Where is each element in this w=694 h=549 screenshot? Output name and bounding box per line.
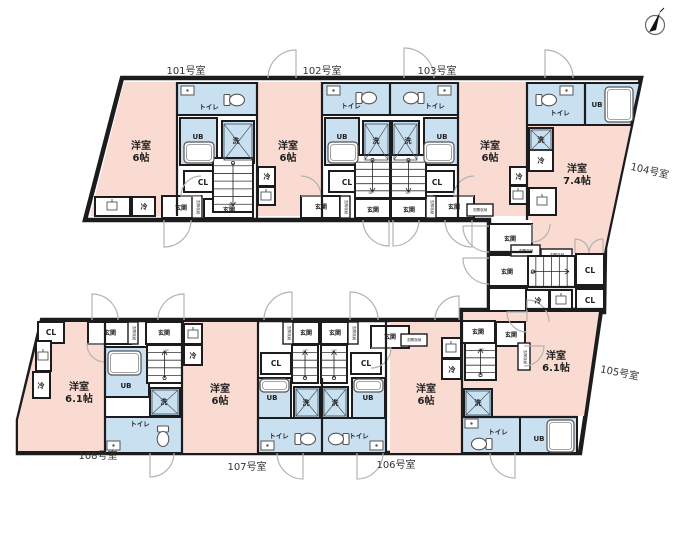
tub-outer	[605, 87, 633, 122]
label-cl-108: CL	[46, 328, 57, 337]
label-room-104-type: 洋室	[567, 162, 587, 175]
label-fridge-108: 冷	[38, 381, 45, 390]
label-ub-108: UB	[120, 382, 131, 390]
label-storage-10: 玄関収納	[407, 337, 422, 342]
label-wash-106: 洗	[332, 398, 339, 407]
label-fridge-107: 冷	[190, 351, 197, 360]
label-storage-7: 玄関収納	[132, 326, 137, 341]
label-toilet-107: トイレ	[269, 432, 289, 440]
label-room-106-size: 6帖	[418, 394, 435, 407]
label-cl-107: CL	[271, 359, 282, 368]
label-toilet-105: トイレ	[488, 428, 508, 436]
bathtub-icon	[184, 142, 214, 163]
label-unit-108: 108号室	[78, 449, 117, 462]
toilet-icon	[329, 433, 350, 445]
door-arc	[393, 220, 419, 246]
label-up-3: UP	[405, 190, 411, 195]
hand-sink-icon	[370, 441, 383, 450]
label-fridge-105: 冷	[535, 296, 542, 305]
label-ub-103: UB	[436, 133, 447, 141]
label-storage-1: 玄関収納	[196, 200, 201, 215]
label-room-106-type: 洋室	[416, 382, 436, 395]
bathtub-icon	[108, 351, 141, 375]
label-wash-107: 洗	[303, 398, 310, 407]
label-cl-mid-2: CL	[585, 296, 596, 305]
label-genkan-106b: 玄関	[329, 329, 341, 337]
label-cl-103: CL	[432, 178, 443, 187]
bathtub-icon	[424, 142, 454, 163]
label-genkan-106: 玄関	[384, 333, 396, 341]
label-genkan-107b: 玄関	[300, 329, 312, 337]
hand-sink-icon	[181, 86, 194, 95]
label-storage-3: 玄関収納	[430, 200, 435, 215]
tub-outer	[184, 142, 214, 163]
label-toilet-101: トイレ	[199, 103, 219, 111]
label-toilet-108: トイレ	[130, 420, 150, 428]
door-arc	[150, 453, 174, 477]
toilet-bowl	[472, 438, 487, 450]
label-wash-102: 洗	[373, 136, 380, 145]
hand-sink-icon	[327, 86, 340, 95]
compass-tail	[660, 8, 664, 12]
label-fridge-103: 冷	[516, 172, 523, 181]
label-room-105-size: 6.1帖	[542, 361, 570, 374]
door-arc	[158, 294, 184, 320]
label-fridge-102: 冷	[264, 172, 271, 181]
label-storage-2: 玄関収納	[344, 200, 349, 215]
label-up-8: UP	[478, 347, 484, 352]
label-ub-107: UB	[266, 394, 277, 402]
hand-sink-icon	[560, 86, 573, 95]
hand-sink-icon	[107, 441, 120, 450]
label-unit-107: 107号室	[227, 460, 266, 473]
label-storage-4: 玄関収納	[473, 207, 488, 212]
label-toilet-106: トイレ	[349, 432, 369, 440]
label-toilet-103: トイレ	[425, 102, 445, 110]
toilet-icon	[295, 433, 316, 445]
sink-drain	[565, 89, 567, 91]
sink-drain	[112, 444, 114, 446]
door-arc	[164, 220, 191, 247]
label-fridge-101: 冷	[141, 202, 148, 211]
label-storage-8: 玄関収納	[287, 326, 292, 341]
label-up-5: UP	[163, 348, 169, 353]
label-room-101-size: 6帖	[133, 151, 150, 164]
label-ub-105: UB	[533, 435, 544, 443]
label-room-104-size: 7.4帖	[563, 174, 591, 187]
toilet-icon	[157, 426, 169, 447]
label-room-108-size: 6.1帖	[65, 392, 93, 405]
door-arc	[92, 294, 118, 320]
label-unit-105: 105号室	[599, 362, 640, 382]
label-ub-101: UB	[192, 133, 203, 141]
sink-drain	[470, 422, 472, 424]
label-cl-mid-1: CL	[585, 266, 596, 275]
bathtub-icon	[547, 420, 574, 452]
label-ub-104: UB	[591, 101, 602, 109]
floor-plan-drawing: 101号室102号室103号室104号室105号室106号室107号室108号室…	[0, 0, 694, 549]
label-toilet-104: トイレ	[550, 109, 570, 117]
toilet-bowl	[404, 92, 419, 104]
door-arc	[277, 453, 303, 479]
toilet-bowl	[362, 92, 377, 104]
sink-drain	[375, 444, 377, 446]
door-arc	[264, 292, 292, 320]
sink-drain	[332, 89, 334, 91]
bathtub-icon	[328, 142, 358, 163]
label-genkan-105: 玄関	[501, 268, 513, 276]
tub-outer	[108, 351, 141, 375]
label-storage-5: 玄関収納	[519, 248, 534, 253]
toilet-icon	[224, 94, 245, 106]
label-genkan-108: 玄関	[104, 329, 116, 337]
tub-outer	[354, 379, 383, 392]
toilet-icon	[472, 438, 493, 450]
label-room-103-size: 6帖	[482, 151, 499, 164]
sink-drain	[266, 444, 268, 446]
bathtub-icon	[354, 379, 383, 392]
label-genkan-103b: 玄関	[403, 206, 415, 214]
toilet-bowl	[157, 432, 169, 447]
toilet-bowl	[230, 94, 245, 106]
label-wash-104: 洗	[538, 135, 545, 144]
toilet-bowl	[542, 94, 557, 106]
tub-outer	[424, 142, 454, 163]
door-arc	[268, 50, 296, 78]
label-genkan-102: 玄関	[315, 203, 327, 211]
label-cl-101: CL	[198, 178, 209, 187]
door-arc	[445, 220, 472, 247]
label-room-101-type: 洋室	[131, 139, 151, 152]
label-room-103-type: 洋室	[480, 139, 500, 152]
toilet-bowl	[329, 433, 344, 445]
label-unit-103: 103号室	[417, 64, 456, 77]
label-wash-108: 洗	[161, 397, 168, 406]
label-unit-106: 106号室	[376, 458, 415, 471]
label-fridge-104: 冷	[538, 156, 545, 165]
label-up-1: UP	[228, 202, 234, 207]
label-genkan-107: 玄関	[158, 329, 170, 337]
label-storage-9: 玄関収納	[352, 326, 357, 341]
tub-outer	[547, 420, 574, 452]
label-room-102-size: 6帖	[280, 151, 297, 164]
sink-drain	[186, 89, 188, 91]
label-ub-102: UB	[336, 133, 347, 141]
label-fridge-106: 冷	[449, 365, 456, 374]
bathtub-icon	[605, 87, 633, 122]
label-cl-106: CL	[361, 359, 372, 368]
floor-plan-page: 101号室102号室103号室104号室105号室106号室107号室108号室…	[0, 0, 694, 549]
label-genkan-102b: 玄関	[367, 206, 379, 214]
sink-drain	[443, 89, 445, 91]
label-wash-101: 洗	[233, 136, 240, 145]
hand-sink-icon	[465, 419, 478, 428]
toilet-icon	[536, 94, 557, 106]
label-toilet-102: トイレ	[341, 102, 361, 110]
label-room-108-type: 洋室	[69, 380, 89, 393]
label-cl-102: CL	[342, 178, 353, 187]
hand-sink-icon	[261, 441, 274, 450]
tub-outer	[328, 142, 358, 163]
bathtub-icon	[260, 379, 289, 392]
label-genkan-101: 玄関	[175, 204, 187, 212]
label-unit-101: 101号室	[166, 64, 205, 77]
label-room-107-type: 洋室	[210, 382, 230, 395]
label-storage-11: 玄関収納	[523, 350, 528, 365]
door-arc	[363, 220, 389, 246]
label-room-107-size: 6帖	[212, 394, 229, 407]
label-storage-6: 玄関収納	[550, 252, 565, 257]
door-arc	[463, 226, 489, 252]
label-unit-102: 102号室	[302, 64, 341, 77]
label-up-2: UP	[368, 190, 374, 195]
label-room-102-type: 洋室	[278, 139, 298, 152]
door-arc	[463, 258, 489, 284]
kitchen-104	[529, 188, 556, 215]
label-up-4: UP	[530, 270, 536, 275]
compass-icon	[646, 8, 665, 35]
label-genkan-103: 玄関	[448, 203, 460, 211]
toilet-icon	[404, 92, 425, 104]
label-up-6: UP	[302, 348, 308, 353]
label-genkan-105b: 玄関	[472, 328, 484, 336]
label-unit-104: 104号室	[629, 160, 670, 181]
label-genkan-105c: 玄関	[505, 331, 517, 339]
label-genkan-101b: 玄関	[223, 206, 235, 214]
tub-outer	[260, 379, 289, 392]
label-wash-103: 洗	[405, 136, 412, 145]
label-ub-106: UB	[362, 394, 373, 402]
door-arc	[490, 453, 515, 478]
toilet-bowl	[301, 433, 316, 445]
hand-sink-icon	[438, 86, 451, 95]
label-wash-105: 洗	[475, 398, 482, 407]
label-genkan-104: 玄関	[504, 235, 516, 243]
door-arc	[350, 292, 378, 320]
door-arc	[435, 296, 459, 320]
label-room-105-type: 洋室	[546, 349, 566, 362]
door-arc	[545, 50, 573, 78]
entry-105-lower	[489, 288, 527, 311]
label-up-7: UP	[331, 348, 337, 353]
